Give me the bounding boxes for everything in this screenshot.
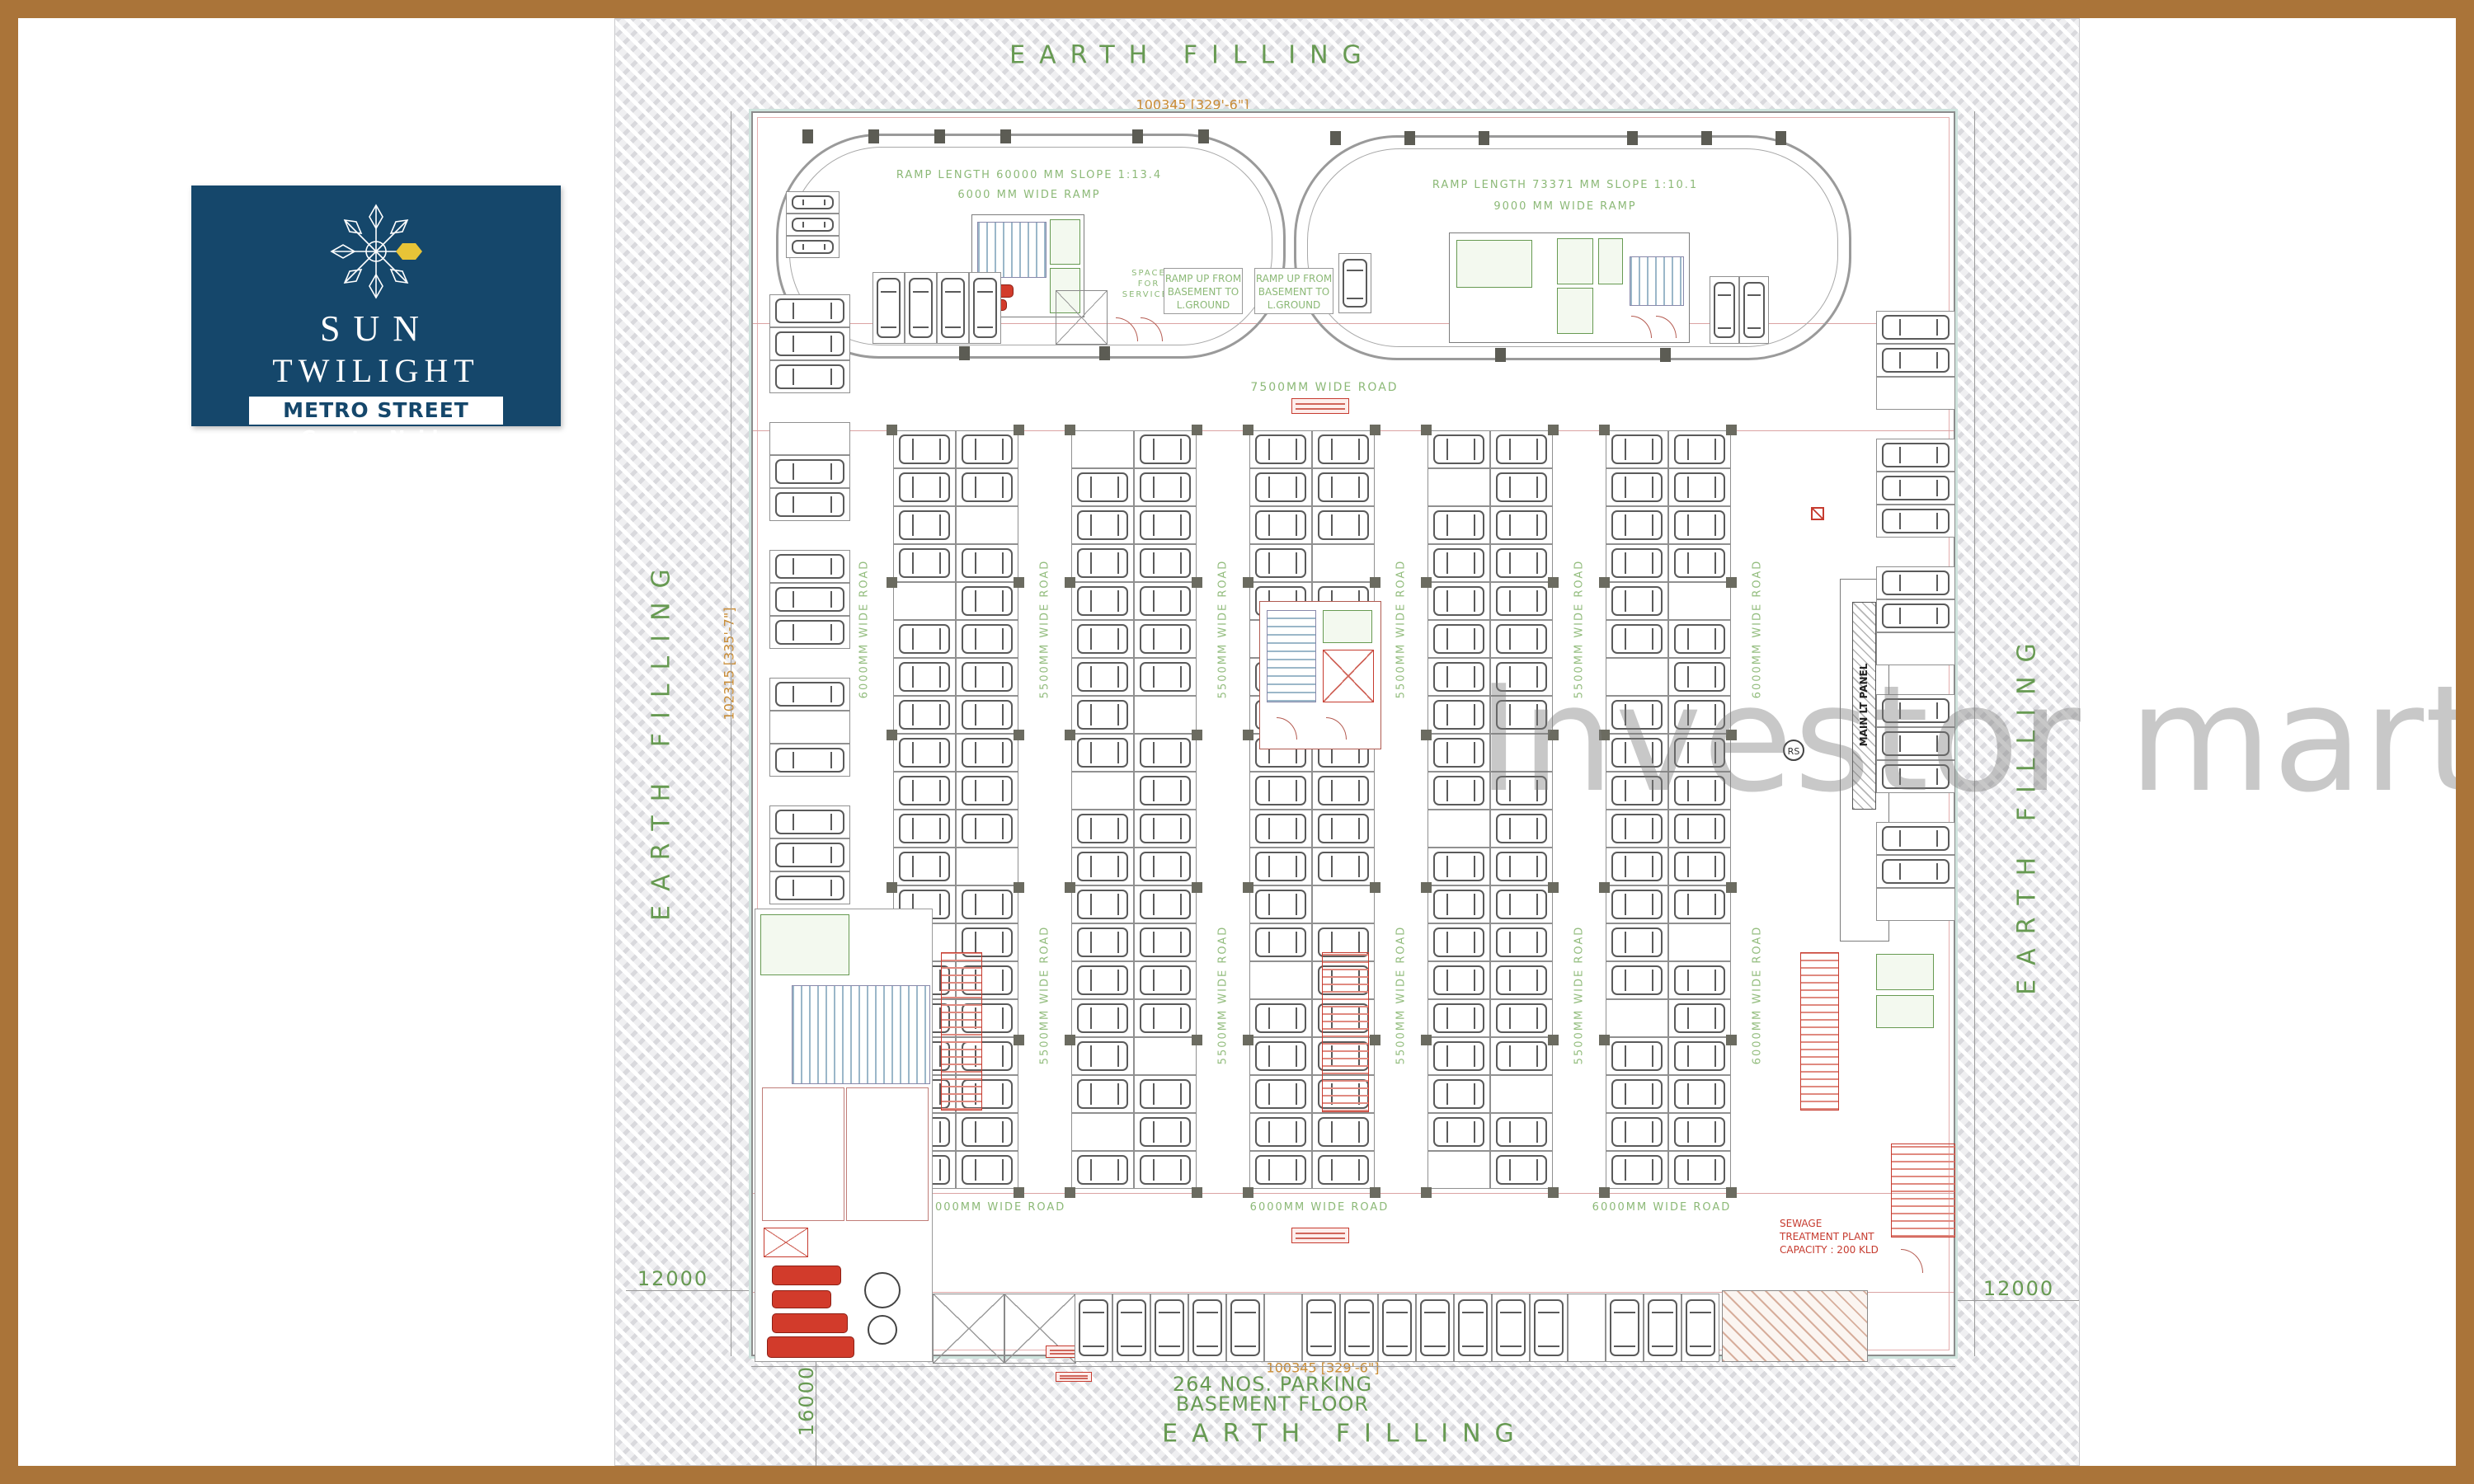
car-icon (1255, 548, 1306, 578)
parking-stall (1340, 1294, 1378, 1362)
car-icon (1140, 586, 1191, 616)
parking-stall (1071, 430, 1134, 468)
car-icon (1496, 1041, 1547, 1071)
car-icon (1140, 1079, 1191, 1109)
offset-dim-left: 12000 (637, 1267, 708, 1290)
vertical-road: 5500MM WIDE ROAD5500MM WIDE ROAD (1197, 430, 1249, 1193)
car-icon (1255, 472, 1306, 502)
parking-stall (1427, 544, 1490, 582)
equipment-badge (1056, 1372, 1092, 1382)
parking-stall (1490, 696, 1553, 734)
column-marker (1421, 577, 1432, 588)
parking-stall (1606, 810, 1668, 848)
car-icon (1433, 1041, 1484, 1071)
loop-tick-marker (1479, 131, 1489, 145)
column-marker (1726, 1035, 1737, 1045)
column-marker (1243, 577, 1253, 588)
car-icon (899, 662, 950, 692)
car-icon (1496, 662, 1547, 692)
car-icon (1140, 852, 1191, 881)
vertical-road: 5500MM WIDE ROAD5500MM WIDE ROAD (1553, 430, 1606, 1193)
column-marker (1726, 577, 1737, 588)
parking-stall (1312, 848, 1375, 885)
dim-line-right (1974, 111, 1975, 1356)
column-marker (887, 577, 897, 588)
service-room (1876, 995, 1934, 1028)
parking-stall (1606, 848, 1668, 885)
parking-stall (1490, 544, 1553, 582)
parking-stall (1134, 734, 1197, 772)
car-icon (775, 876, 844, 900)
parking-stall (1606, 620, 1668, 658)
car-icon (1674, 776, 1725, 805)
parking-stall (1490, 506, 1553, 544)
car-icon (775, 682, 844, 707)
car-icon (1882, 315, 1950, 340)
parking-stall (1427, 848, 1490, 885)
parking-stall (1249, 961, 1312, 999)
car-icon (1420, 1299, 1450, 1356)
parking-stall (1668, 961, 1731, 999)
parking-stall (1668, 468, 1731, 506)
loop-tick-marker (1627, 131, 1638, 145)
building-outline: RAMP LENGTH 60000 MM SLOPE 1:13.4 6000 M… (751, 111, 1955, 1356)
road-label-vertical: 5500MM WIDE ROAD (1573, 559, 1586, 698)
car-icon (1611, 1041, 1663, 1071)
car-icon (1433, 776, 1484, 805)
car-icon (1611, 776, 1663, 805)
fire-pump-icon (772, 1266, 841, 1285)
shaft-xbrace (1323, 650, 1374, 702)
offset-dim-right: 12000 (1983, 1277, 2054, 1300)
parking-stall (1490, 961, 1553, 999)
parking-stall (1071, 658, 1134, 696)
logo-banner: METRO STREET (249, 397, 503, 425)
car-icon (1077, 1003, 1128, 1033)
car-icon (962, 624, 1013, 654)
parking-stall (1071, 734, 1134, 772)
car-icon (1496, 700, 1547, 730)
parking-stall (1427, 923, 1490, 961)
parking-stall (1668, 734, 1731, 772)
parking-stall (769, 678, 850, 711)
road-marker-badge (1291, 1228, 1349, 1243)
parking-stall (1427, 620, 1490, 658)
car-icon (1255, 927, 1306, 957)
snowflake-icon (191, 200, 561, 306)
car-icon (1882, 443, 1950, 467)
parking-stall (769, 583, 850, 616)
parking-stall (1876, 632, 1955, 665)
parking-stall (1668, 430, 1731, 468)
column-marker (1599, 425, 1610, 435)
car-icon (1255, 1155, 1306, 1185)
car-icon (1611, 965, 1663, 995)
parking-stall (1134, 1151, 1197, 1189)
car-icon (1674, 1117, 1725, 1147)
car-icon (1674, 472, 1725, 502)
parking-stall (1071, 544, 1134, 582)
parking-stall (1134, 923, 1197, 961)
column-marker (1014, 577, 1024, 588)
column-marker (1421, 882, 1432, 893)
parking-stall (1071, 468, 1134, 506)
parking-stall (1876, 377, 1955, 410)
column-marker (1548, 1187, 1559, 1198)
car-icon (1344, 1299, 1374, 1356)
column-marker (1192, 425, 1202, 435)
car-icon (775, 364, 844, 389)
tank-circle-icon (868, 1315, 897, 1345)
car-icon (1433, 586, 1484, 616)
parking-stall (1427, 772, 1490, 810)
car-icon (962, 662, 1013, 692)
parking-stall (1134, 772, 1197, 810)
parking-stall (769, 360, 850, 393)
column-marker (1421, 730, 1432, 740)
dim-line-bottom (751, 1366, 1955, 1367)
parking-stall (1606, 696, 1668, 734)
car-icon (1611, 624, 1663, 654)
parking-stall (893, 734, 956, 772)
loop-tick-marker (1776, 131, 1786, 145)
car-icon (1255, 1117, 1306, 1147)
parking-stall (956, 1113, 1018, 1151)
road-label-bottom-3: 6000MM WIDE ROAD (1592, 1201, 1732, 1214)
plant-block (755, 909, 933, 1362)
car-icon (1077, 510, 1128, 540)
column-marker (1065, 425, 1075, 435)
parking-stall (1427, 999, 1490, 1037)
car-icon (1648, 1299, 1677, 1356)
car-icon (962, 434, 1013, 464)
car-icon (1140, 890, 1191, 919)
car-icon (1318, 1117, 1369, 1147)
car-icon (1496, 965, 1547, 995)
loop-tick-marker (959, 346, 970, 360)
car-icon (1674, 548, 1725, 578)
car-icon (1496, 1117, 1547, 1147)
car-icon (899, 434, 950, 464)
car-icon (1496, 472, 1547, 502)
car-icon (1674, 1155, 1725, 1185)
column-marker (1243, 1035, 1253, 1045)
parking-stall (1134, 885, 1197, 923)
car-icon (1433, 700, 1484, 730)
car-icon (899, 472, 950, 502)
parking-stall (956, 772, 1018, 810)
car-icon (1077, 927, 1128, 957)
column-marker (1370, 425, 1380, 435)
parking-stall (1427, 885, 1490, 923)
parking-stall (1490, 885, 1553, 923)
car-icon (1318, 1155, 1369, 1185)
car-icon (1674, 700, 1725, 730)
loop-tick-marker (802, 129, 813, 143)
site-plan: EARTH FILLING EARTH FILLING EARTH FILLIN… (614, 18, 2080, 1466)
parking-stall (1490, 734, 1553, 772)
loop-tick-marker (868, 129, 879, 143)
car-icon (1077, 700, 1128, 730)
parking-stall (1876, 344, 1955, 377)
parking-stall (1606, 506, 1668, 544)
car-icon (1255, 852, 1306, 881)
column-marker (1014, 882, 1024, 893)
parking-stall (1492, 1294, 1530, 1362)
car-icon (1079, 1299, 1108, 1356)
tank-circle-icon (864, 1272, 901, 1308)
car-icon (962, 586, 1013, 616)
parking-stall (956, 734, 1018, 772)
car-icon (1882, 764, 1950, 789)
car-icon (1230, 1299, 1260, 1356)
car-icon (1496, 1299, 1526, 1356)
column-marker (1548, 577, 1559, 588)
car-icon (1882, 348, 1950, 373)
car-icon (1686, 1299, 1715, 1356)
column-marker (1548, 730, 1559, 740)
parking-stall (1876, 760, 1955, 793)
stp-label-2: TREATMENT PLANT (1780, 1231, 1874, 1243)
parking-stall (1606, 999, 1668, 1037)
column-marker (1014, 425, 1024, 435)
staircase-icon (1267, 610, 1316, 702)
parking-stall (956, 430, 1018, 468)
parking-stall (1490, 923, 1553, 961)
vertical-road: 6000MM WIDE ROAD6000MM WIDE ROAD (1731, 430, 1784, 1193)
column-marker (1192, 730, 1202, 740)
fire-pump-icon (772, 1290, 831, 1308)
car-icon (1077, 1079, 1128, 1109)
parking-stall (1490, 430, 1553, 468)
parking-stall (1606, 1294, 1644, 1362)
parking-stall (1490, 772, 1553, 810)
parking-stall (1490, 658, 1553, 696)
parking-stall (1606, 961, 1668, 999)
parking-stall (769, 616, 850, 649)
car-icon (1882, 603, 1950, 628)
parking-stall (1876, 439, 1955, 472)
lift-box (1323, 610, 1372, 643)
car-icon (1077, 814, 1128, 843)
road-label-vertical: 5500MM WIDE ROAD (1573, 925, 1586, 1064)
car-icon (1674, 738, 1725, 768)
car-icon (962, 1117, 1013, 1147)
car-icon (1077, 738, 1128, 768)
car-icon (1496, 1003, 1547, 1033)
core-center (1259, 601, 1381, 749)
car-icon (1318, 776, 1369, 805)
parking-stall (769, 488, 850, 521)
parking-stall (1188, 1294, 1226, 1362)
fire-stair-shaft (941, 952, 982, 1111)
parking-stall (769, 422, 850, 455)
parking-stall (1606, 772, 1668, 810)
car-icon (1255, 1003, 1306, 1033)
car-icon (962, 548, 1013, 578)
car-icon (775, 492, 844, 517)
parking-stall (1668, 1075, 1731, 1113)
column-marker (887, 882, 897, 893)
loop-tick-marker (1330, 131, 1341, 145)
loop-tick-marker (1495, 348, 1506, 362)
loop-tick-marker (1660, 348, 1671, 362)
parking-stall (1071, 961, 1134, 999)
car-icon (1140, 965, 1191, 995)
earth-filling-left: EARTH FILLING (647, 555, 676, 921)
parking-stall (1134, 961, 1197, 999)
car-icon (1611, 472, 1663, 502)
car-icon (1255, 510, 1306, 540)
parking-stall (893, 696, 956, 734)
car-icon (1140, 548, 1191, 578)
column-marker (1548, 425, 1559, 435)
parking-stall (1427, 468, 1490, 506)
parking-stall (1427, 1151, 1490, 1189)
parking-stall (1668, 696, 1731, 734)
column-marker (1065, 730, 1075, 740)
parking-stall (1490, 582, 1553, 620)
parking-stall (1249, 999, 1312, 1037)
column-marker (1421, 1035, 1432, 1045)
parking-stall (1071, 848, 1134, 885)
column-marker (1014, 1035, 1024, 1045)
water-tank-room (846, 1087, 929, 1221)
parking-stall (1876, 505, 1955, 538)
logo: SUN TWILIGHT METRO STREET Greater Noida (191, 185, 561, 426)
fire-stair-shaft (1891, 1144, 1955, 1237)
car-icon (1674, 1079, 1725, 1109)
parking-stall (1606, 1037, 1668, 1075)
car-icon (1611, 738, 1663, 768)
car-icon (1611, 548, 1663, 578)
parking-stall (1134, 1037, 1197, 1075)
column-marker (887, 425, 897, 435)
road-label-vertical: 5500MM WIDE ROAD (1395, 925, 1408, 1064)
parking-stall (1312, 468, 1375, 506)
car-icon (1077, 890, 1128, 919)
parking-stall (1427, 582, 1490, 620)
car-icon (1611, 1155, 1663, 1185)
parking-column-group (1427, 430, 1553, 1193)
parking-stall (1134, 468, 1197, 506)
earth-filling-top: EARTH FILLING (1009, 41, 1376, 70)
car-icon (1458, 1299, 1488, 1356)
parking-stall (1668, 810, 1731, 848)
column-marker (1599, 1035, 1610, 1045)
parking-stall (1427, 734, 1490, 772)
parking-stall (1490, 468, 1553, 506)
door-arc-icon (1326, 717, 1347, 740)
gold-hexagon-icon (396, 243, 422, 260)
parking-stall (1606, 734, 1668, 772)
car-icon (1255, 776, 1306, 805)
road-label-bottom-2: 6000MM WIDE ROAD (1250, 1201, 1390, 1214)
column-marker (1599, 882, 1610, 893)
car-icon (1674, 434, 1725, 464)
logo-city: Greater Noida (191, 428, 561, 449)
car-icon (1140, 624, 1191, 654)
parking-stall (1071, 506, 1134, 544)
car-icon (775, 554, 844, 579)
car-icon (1882, 509, 1950, 533)
car-icon (1610, 1299, 1639, 1356)
dim-line-left (731, 111, 731, 1356)
car-icon (1433, 852, 1484, 881)
parking-stall (893, 582, 956, 620)
parking-stall (1312, 1151, 1375, 1189)
column-marker (1421, 425, 1432, 435)
loop-tick-marker (934, 129, 945, 143)
column-marker (1370, 882, 1380, 893)
car-icon (1140, 776, 1191, 805)
car-icon (962, 814, 1013, 843)
car-icon (1140, 927, 1191, 957)
column-marker (1065, 577, 1075, 588)
parking-stall (1249, 772, 1312, 810)
car-icon (1433, 927, 1484, 957)
car-icon (1496, 890, 1547, 919)
car-icon (1077, 662, 1128, 692)
parking-stall (1490, 1151, 1553, 1189)
vertical-road: 5500MM WIDE ROAD5500MM WIDE ROAD (1018, 430, 1071, 1193)
car-icon (1077, 1041, 1128, 1071)
parking-stall (956, 885, 1018, 923)
column-marker (1065, 1187, 1075, 1198)
car-icon (1674, 814, 1725, 843)
car-icon (1433, 662, 1484, 692)
car-icon (775, 620, 844, 645)
parking-column-group (1606, 430, 1731, 1193)
parking-stall (1249, 810, 1312, 848)
loop-tick-marker (1198, 129, 1209, 143)
parking-stall (1264, 1294, 1302, 1362)
parking-stall (1378, 1294, 1416, 1362)
column-marker (1065, 882, 1075, 893)
parking-stall (1075, 1294, 1112, 1362)
parking-stall (1668, 1151, 1731, 1189)
parking-stall (1490, 810, 1553, 848)
parking-stall (1312, 1113, 1375, 1151)
parking-stall (1312, 506, 1375, 544)
parking-stall (956, 696, 1018, 734)
car-icon (899, 624, 950, 654)
parking-stall (1644, 1294, 1681, 1362)
parking-stall (1071, 810, 1134, 848)
parking-stall (1249, 430, 1312, 468)
parking-stall (1071, 620, 1134, 658)
car-icon (1496, 814, 1547, 843)
car-icon (1433, 624, 1484, 654)
car-icon (1611, 814, 1663, 843)
road-label-vertical: 5500MM WIDE ROAD (1039, 559, 1051, 698)
column-marker (1014, 1187, 1024, 1198)
car-icon (899, 700, 950, 730)
parking-stall (893, 468, 956, 506)
parking-stall (1668, 772, 1731, 810)
parking-stall (1134, 620, 1197, 658)
column-marker (1370, 1035, 1380, 1045)
service-room (760, 914, 849, 975)
parking-stall (1249, 1113, 1312, 1151)
parking-stall (1249, 1151, 1312, 1189)
car-icon (1140, 738, 1191, 768)
car-icon (1140, 510, 1191, 540)
column-marker (1726, 882, 1737, 893)
car-icon (1611, 434, 1663, 464)
parking-stall (769, 744, 850, 777)
parking-stall (1134, 1113, 1197, 1151)
